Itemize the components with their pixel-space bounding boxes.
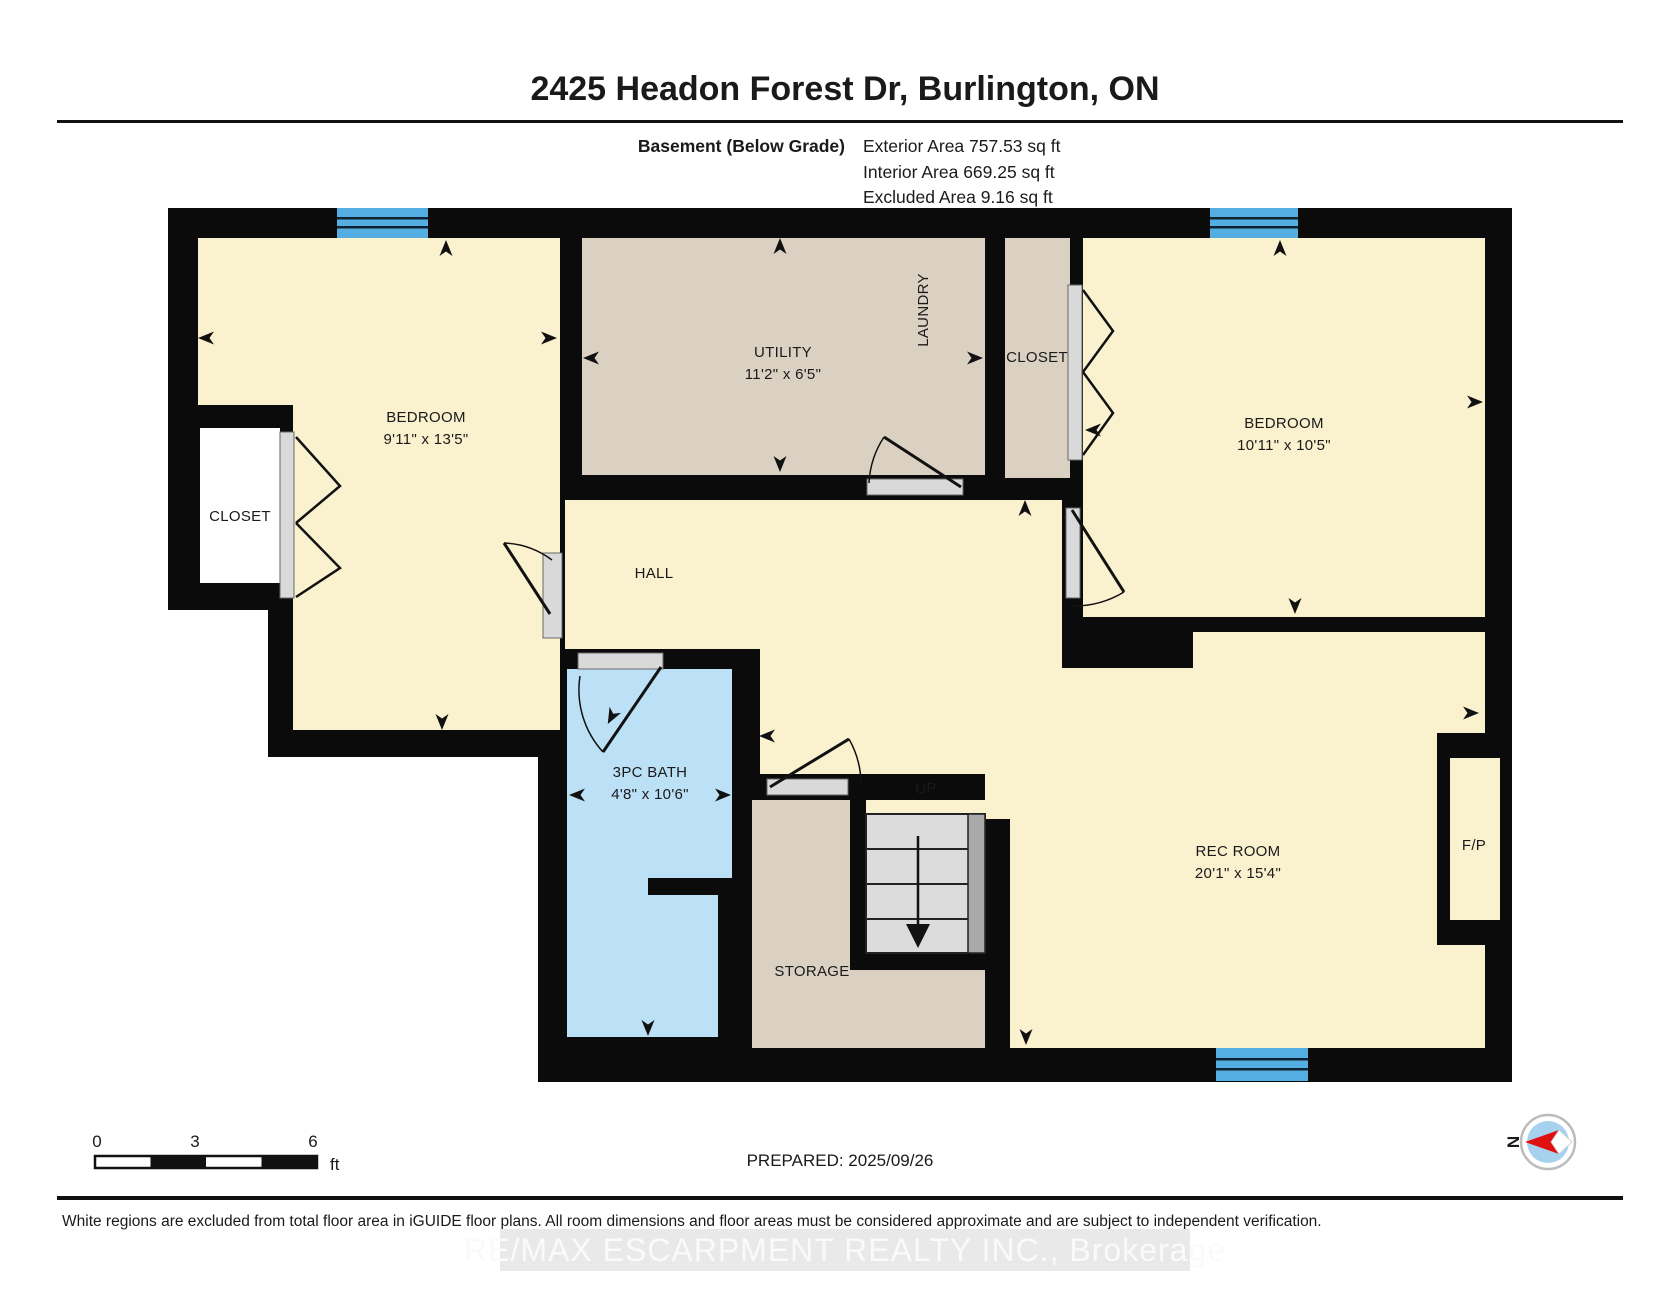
label-bedroom-left-dims: 9'11" x 13'5" bbox=[383, 431, 468, 448]
page-title: 2425 Headon Forest Dr, Burlington, ON bbox=[530, 70, 1159, 108]
footer: 0 3 6 ft PREPARED: 2025/09/26 N White re… bbox=[57, 1115, 1623, 1271]
scale-bar-seg2 bbox=[151, 1156, 207, 1168]
room-bath bbox=[567, 669, 732, 1037]
prepared-date: PREPARED: 2025/09/26 bbox=[747, 1151, 934, 1170]
stairs-rail bbox=[968, 814, 985, 953]
window-bedroom-right-icon bbox=[1210, 208, 1298, 238]
room-closet-left bbox=[200, 428, 280, 583]
label-closet-left: CLOSET bbox=[209, 508, 271, 525]
interior-area: Interior Area 669.25 sq ft bbox=[863, 162, 1055, 182]
label-utility-dims: 11'2" x 6'5" bbox=[745, 366, 821, 383]
label-utility: UTILITY bbox=[754, 344, 812, 361]
label-rec-room-dims: 20'1" x 15'4" bbox=[1195, 865, 1281, 882]
label-laundry: LAUNDRY bbox=[915, 273, 932, 347]
scale-bar-seg4 bbox=[262, 1156, 318, 1168]
scale-tick-0: 0 bbox=[92, 1132, 101, 1151]
room-stair-landing bbox=[866, 800, 985, 814]
label-rec-room: REC ROOM bbox=[1196, 843, 1281, 860]
brokerage-watermark: RE/MAX ESCARPMENT REALTY INC., Brokerage bbox=[464, 1229, 1226, 1271]
label-bedroom-left: BEDROOM bbox=[386, 409, 466, 426]
room-rec bbox=[1010, 632, 1485, 1048]
header-divider bbox=[57, 120, 1623, 123]
compass-icon: N bbox=[1504, 1115, 1575, 1169]
scale-tick-6: 6 bbox=[308, 1132, 317, 1151]
exterior-area: Exterior Area 757.53 sq ft bbox=[863, 136, 1061, 156]
header: 2425 Headon Forest Dr, Burlington, ON Ba… bbox=[57, 70, 1623, 207]
label-bath: 3PC BATH bbox=[613, 764, 688, 781]
label-bedroom-right-dims: 10'11" x 10'5" bbox=[1237, 437, 1331, 454]
window-bedroom-left-icon bbox=[337, 208, 428, 238]
excluded-area: Excluded Area 9.16 sq ft bbox=[863, 187, 1053, 207]
compass-north-label: N bbox=[1504, 1136, 1523, 1148]
floor-label: Basement (Below Grade) bbox=[638, 136, 845, 156]
footer-divider bbox=[57, 1196, 1623, 1200]
watermark-text: RE/MAX ESCARPMENT REALTY INC., Brokerage bbox=[464, 1232, 1226, 1268]
scale-tick-3: 3 bbox=[190, 1132, 199, 1151]
stairs bbox=[866, 814, 985, 953]
scale-unit: ft bbox=[330, 1155, 340, 1174]
disclaimer-text: White regions are excluded from total fl… bbox=[62, 1213, 1322, 1230]
label-fireplace: F/P bbox=[1462, 837, 1486, 854]
label-hall: HALL bbox=[635, 565, 674, 582]
label-closet-center: CLOSET bbox=[1006, 349, 1068, 366]
label-bath-dims: 4'8" x 10'6" bbox=[611, 786, 689, 803]
room-bedroom-left bbox=[198, 238, 560, 405]
label-bedroom-right: BEDROOM bbox=[1244, 415, 1324, 432]
window-rec-room-icon bbox=[1216, 1048, 1308, 1081]
scale-bar: 0 3 6 ft bbox=[92, 1132, 339, 1174]
floorplan-page: 2425 Headon Forest Dr, Burlington, ON Ba… bbox=[0, 0, 1680, 1299]
label-stairs-up: UP bbox=[915, 780, 936, 797]
label-storage: STORAGE bbox=[774, 963, 849, 980]
